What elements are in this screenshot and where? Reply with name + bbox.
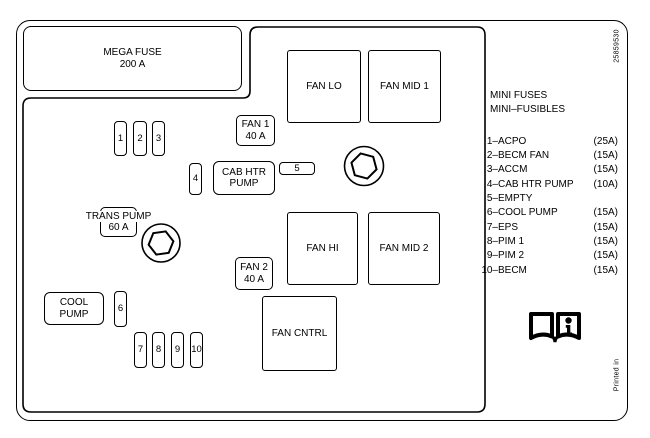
relay-fan-hi: FAN HI — [287, 212, 358, 285]
mega-fuse: MEGA FUSE 200 A — [23, 26, 242, 91]
mini-fuse-slot-8: 8 — [152, 332, 165, 368]
legend-row: 2–BECM FAN(15A) — [481, 148, 618, 162]
open-book-info-icon — [527, 311, 583, 346]
legend-row: 10–BECM(15A) — [481, 263, 618, 277]
mega-fuse-label: MEGA FUSE — [103, 47, 161, 59]
mini-fuse-slot-4: 4 — [189, 163, 202, 195]
mega-fuse-rating: 200 A — [103, 59, 161, 71]
mini-fuse-slot-9: 9 — [171, 332, 184, 368]
part-number-vertical: 25859530 — [614, 29, 621, 63]
relay-fan-cntrl: FAN CNTRL — [262, 296, 337, 371]
relay-fan-mid-2: FAN MID 2 — [368, 212, 440, 285]
legend-row: 1–ACPO(25A) — [481, 134, 618, 148]
mini-fuse-slot-1: 1 — [114, 121, 127, 156]
legend-row: 4–CAB HTR PUMP(10A) — [481, 177, 618, 191]
legend-list: 1–ACPO(25A) 2–BECM FAN(15A) 3–ACCM(15A) … — [481, 134, 618, 277]
fuse-cab-htr-pump: CAB HTR PUMP — [213, 161, 275, 195]
mini-fuse-slot-5: 5 — [279, 162, 315, 175]
legend-title: MINI FUSES MINI–FUSIBLES — [490, 89, 565, 117]
fuse-fan-2: FAN 2 40 A — [235, 257, 273, 290]
fuse-cool-pump: COOL PUMP — [44, 292, 104, 325]
mini-fuse-slot-2: 2 — [133, 121, 147, 156]
legend-row: 9–PIM 2(15A) — [481, 249, 618, 263]
legend-row: 5–EMPTY — [481, 191, 618, 205]
mini-fuse-slot-3: 3 — [152, 121, 165, 156]
legend-row: 7–EPS(15A) — [481, 220, 618, 234]
mini-fuse-slot-6: 6 — [114, 291, 127, 327]
legend-row: 8–PIM 1(15A) — [481, 234, 618, 248]
fuse-fan-1: FAN 1 40 A — [236, 115, 275, 146]
legend-row: 6–COOL PUMP(15A) — [481, 206, 618, 220]
mini-fuse-slot-10: 10 — [190, 332, 203, 368]
relay-fan-mid-1: FAN MID 1 — [368, 50, 441, 123]
relay-fan-lo: FAN LO — [287, 50, 361, 123]
fuse-trans-pump: TRANS PUMP 60 A — [100, 207, 137, 237]
legend-row: 3–ACCM(15A) — [481, 163, 618, 177]
fuse-box-diagram: MEGA FUSE 200 A FAN LO FAN MID 1 FAN HI … — [0, 0, 650, 438]
mini-fuse-slot-7: 7 — [134, 332, 147, 368]
printed-in-vertical: Printed in — [614, 359, 621, 392]
hex-bolt-icon — [345, 147, 384, 186]
